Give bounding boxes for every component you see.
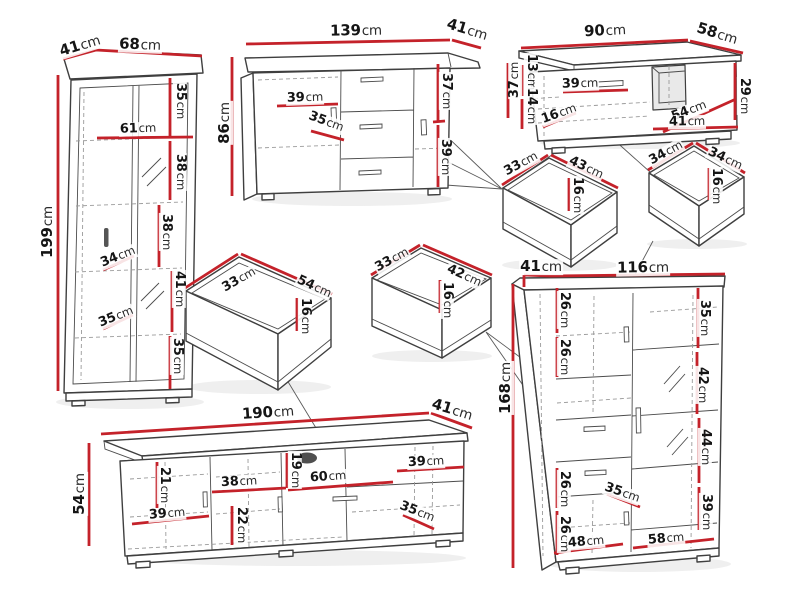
highboard-cabinet-drawing bbox=[512, 274, 725, 574]
diagram-linework bbox=[0, 0, 800, 600]
drawer-33x42-drawing bbox=[371, 245, 492, 358]
furniture-dimension-diagram: 41cm68cm199cm35cm61cm38cm38cm34cm41cm35c… bbox=[0, 0, 800, 600]
cable-hole bbox=[297, 453, 317, 464]
tv-stand-drawing bbox=[89, 413, 472, 568]
tall-display-cabinet-drawing bbox=[58, 50, 203, 406]
drawer-33x54-drawing bbox=[185, 254, 332, 390]
drawer-33x43-drawing bbox=[502, 155, 618, 267]
sideboard-drawing bbox=[232, 40, 481, 200]
coffee-table-drawing bbox=[508, 40, 743, 154]
drawer-34x34-drawing bbox=[648, 143, 745, 246]
